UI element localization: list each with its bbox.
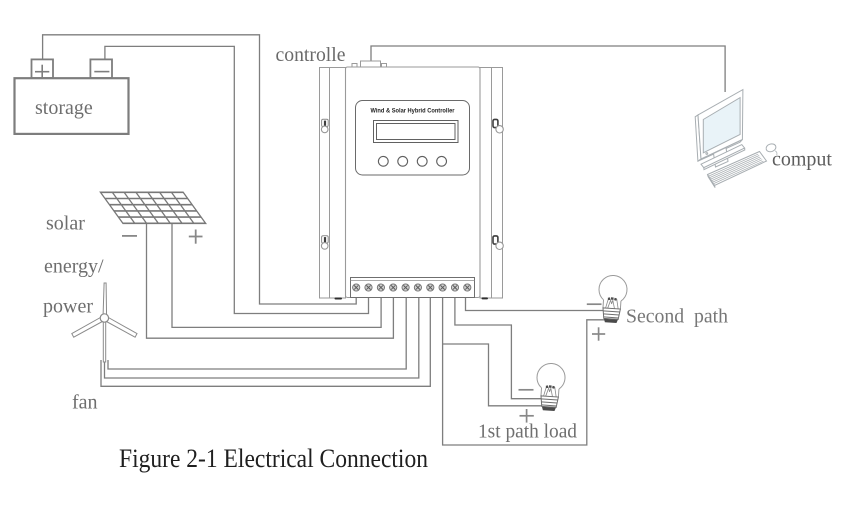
svg-text:Wind & Solar Hybrid Controller: Wind & Solar Hybrid Controller [371,109,456,115]
svg-text:power: power [43,296,93,318]
svg-text:comput: comput [772,149,832,171]
svg-text:energy/: energy/ [44,256,104,278]
svg-text:solar: solar [46,213,85,235]
svg-text:fan: fan [72,392,98,414]
svg-text:controlle: controlle [276,44,346,66]
svg-text:Second path: Second path [626,306,728,328]
svg-text:1st path load: 1st path load [478,421,577,443]
svg-text:Figure 2-1 Electrical Connecti: Figure 2-1 Electrical Connection [119,444,428,473]
svg-text:storage: storage [35,97,93,119]
